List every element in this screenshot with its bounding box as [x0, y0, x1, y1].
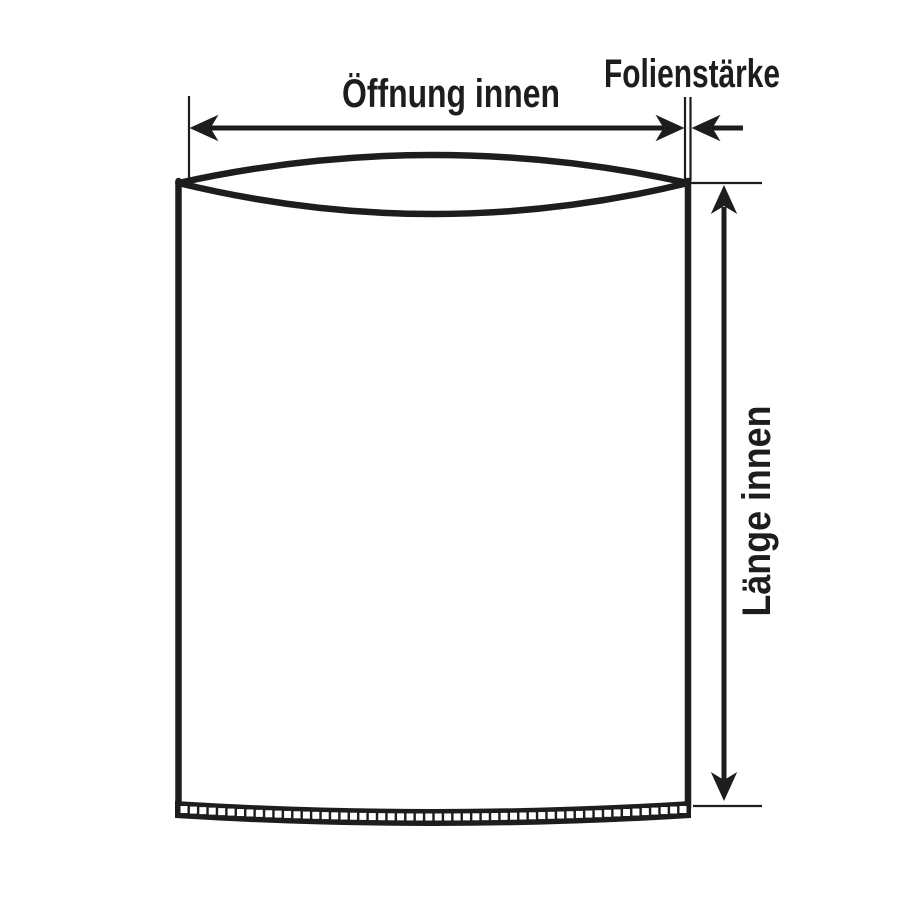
seam-stitch-square: [548, 812, 555, 819]
seam-stitch-square: [519, 813, 526, 820]
seam-stitch-square: [350, 813, 357, 820]
seam-stitch-square: [388, 813, 395, 820]
seam-stitch-square: [670, 807, 677, 814]
pouch-dimension-diagram: Öffnung innen Folienstärke Länge innen: [0, 0, 900, 900]
seam-stitch-square: [303, 812, 310, 819]
opening-width-label: Öffnung innen: [342, 71, 560, 116]
seam-stitch-square: [312, 812, 319, 819]
seam-stitch-square: [190, 807, 197, 814]
seam-stitch-square: [454, 813, 461, 820]
seam-stitch-square: [416, 813, 423, 820]
seam-stitch-square: [661, 807, 668, 814]
seam-stitch-square: [604, 810, 611, 817]
seam-stitch-square: [444, 813, 451, 820]
seam-stitch-square: [322, 812, 329, 819]
seam-stitch-square: [284, 811, 291, 818]
seam-stitch-square: [237, 809, 244, 816]
seam-stitch-square: [491, 813, 498, 820]
seam-stitch-square: [209, 808, 216, 815]
seam-stitch-square: [265, 810, 272, 817]
seam-stitch-square: [199, 807, 206, 814]
seam-stitch-square: [632, 809, 639, 816]
seam-stitch-square: [378, 813, 385, 820]
seam-stitch-square: [181, 806, 188, 813]
seam-stitch-square: [501, 813, 508, 820]
seam-stitch-square: [510, 813, 517, 820]
seam-stitch-square: [293, 811, 300, 818]
seam-stitch-square: [472, 813, 479, 820]
seam-stitch-square: [557, 812, 564, 819]
seam-stitch-square: [256, 810, 263, 817]
seam-stitch-square: [425, 814, 432, 821]
seam-stitch-square: [275, 811, 282, 818]
seam-stitch-square: [529, 812, 536, 819]
seam-stitch-square: [228, 809, 235, 816]
seam-stitch-square: [341, 813, 348, 820]
seam-stitch-square: [567, 811, 574, 818]
seam-stitch-square: [406, 813, 413, 820]
seam-stitch-square: [538, 812, 545, 819]
seam-stitch-square: [246, 809, 253, 816]
seam-stitch-square: [642, 808, 649, 815]
seam-stitch-square: [482, 813, 489, 820]
seam-stitch-square: [576, 811, 583, 818]
seam-stitch-square: [369, 813, 376, 820]
seam-stitch-square: [463, 813, 470, 820]
inner-length-label: Länge innen: [735, 406, 779, 617]
seam-stitch-square: [651, 808, 658, 815]
seam-stitch-square: [623, 809, 630, 816]
seam-stitch-square: [218, 808, 225, 815]
seam-stitch-square: [680, 806, 687, 813]
seam-stitch-square: [435, 814, 442, 821]
seam-stitch-square: [585, 811, 592, 818]
seam-stitch-square: [359, 813, 366, 820]
seam-stitch-square: [397, 813, 404, 820]
seam-stitch-square: [595, 810, 602, 817]
seam-stitch-square: [614, 809, 621, 816]
seam-stitch-square: [331, 812, 338, 819]
film-thickness-label: Folienstärke: [604, 52, 780, 96]
